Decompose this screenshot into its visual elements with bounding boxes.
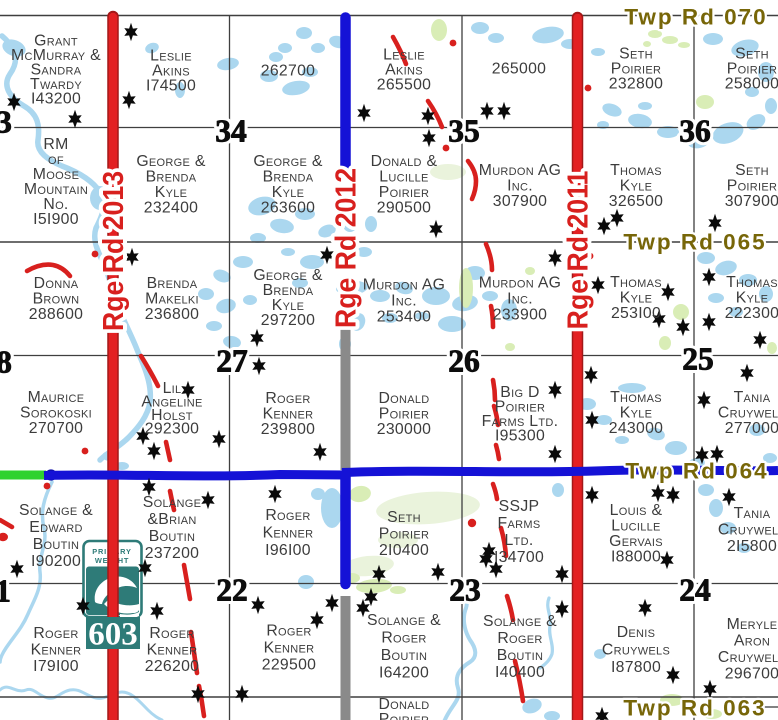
svg-text:RogerKennerI79I00: RogerKennerI79I00 — [31, 625, 82, 675]
svg-text:LeslieAkinsI74500: LeslieAkinsI74500 — [146, 48, 196, 95]
svg-text:22: 22 — [216, 573, 248, 608]
svg-text:25: 25 — [682, 342, 714, 377]
svg-text:265000: 265000 — [492, 61, 547, 78]
svg-text:RogerKenner226200: RogerKenner226200 — [145, 625, 200, 675]
svg-text:Rge Rd 2011: Rge Rd 2011 — [561, 171, 593, 330]
svg-text:George &BrendaKyle263600: George &BrendaKyle263600 — [253, 153, 323, 217]
svg-text:Twp Rd 063: Twp Rd 063 — [623, 696, 766, 720]
svg-text:Solange&BrianBoutin237200: Solange&BrianBoutin237200 — [143, 494, 201, 562]
svg-text:262700: 262700 — [261, 63, 316, 80]
svg-text:8: 8 — [0, 345, 12, 380]
svg-text:BrendaMakelki236800: BrendaMakelki236800 — [145, 275, 200, 323]
svg-text:MeryleAronCruywels296700: MeryleAronCruywels296700 — [718, 616, 778, 683]
svg-text:George &BrendaKyle232400: George &BrendaKyle232400 — [136, 153, 206, 217]
svg-text:27: 27 — [216, 344, 248, 379]
svg-text:Donald &LucillePoirier290500: Donald &LucillePoirier290500 — [371, 153, 438, 217]
svg-text:DonaldPoirier: DonaldPoirier — [378, 696, 429, 720]
svg-text:3: 3 — [0, 105, 12, 140]
svg-text:MauriceSorokoski270700: MauriceSorokoski270700 — [20, 389, 92, 437]
svg-text:36: 36 — [679, 114, 711, 149]
svg-text:23: 23 — [449, 573, 481, 608]
svg-text:603: 603 — [88, 617, 138, 653]
svg-text:Louis &LucilleGervaisI88000: Louis &LucilleGervaisI88000 — [609, 502, 663, 566]
svg-text:35: 35 — [448, 114, 480, 149]
svg-text:Twp Rd 070: Twp Rd 070 — [624, 5, 767, 30]
svg-text:26: 26 — [448, 344, 480, 379]
svg-text:1: 1 — [0, 574, 11, 609]
svg-text:34: 34 — [215, 114, 247, 149]
svg-text:DonnaBrown288600: DonnaBrown288600 — [29, 275, 84, 323]
svg-text:Rge Rd 2012: Rge Rd 2012 — [329, 168, 361, 328]
svg-text:George &BrendaKyle297200: George &BrendaKyle297200 — [253, 267, 323, 329]
svg-text:RogerKenner229500: RogerKenner229500 — [262, 623, 317, 674]
svg-text:RogerKennerI96I00: RogerKennerI96I00 — [263, 507, 314, 559]
svg-text:Rge Rd 2013: Rge Rd 2013 — [97, 171, 129, 331]
svg-text:Twp Rd 064: Twp Rd 064 — [625, 459, 768, 484]
svg-text:24: 24 — [679, 573, 711, 608]
svg-text:RogerKenner239800: RogerKenner239800 — [261, 390, 316, 438]
svg-text:Twp Rd 065: Twp Rd 065 — [623, 230, 766, 255]
svg-text:DonaldPoirier230000: DonaldPoirier230000 — [377, 390, 432, 438]
